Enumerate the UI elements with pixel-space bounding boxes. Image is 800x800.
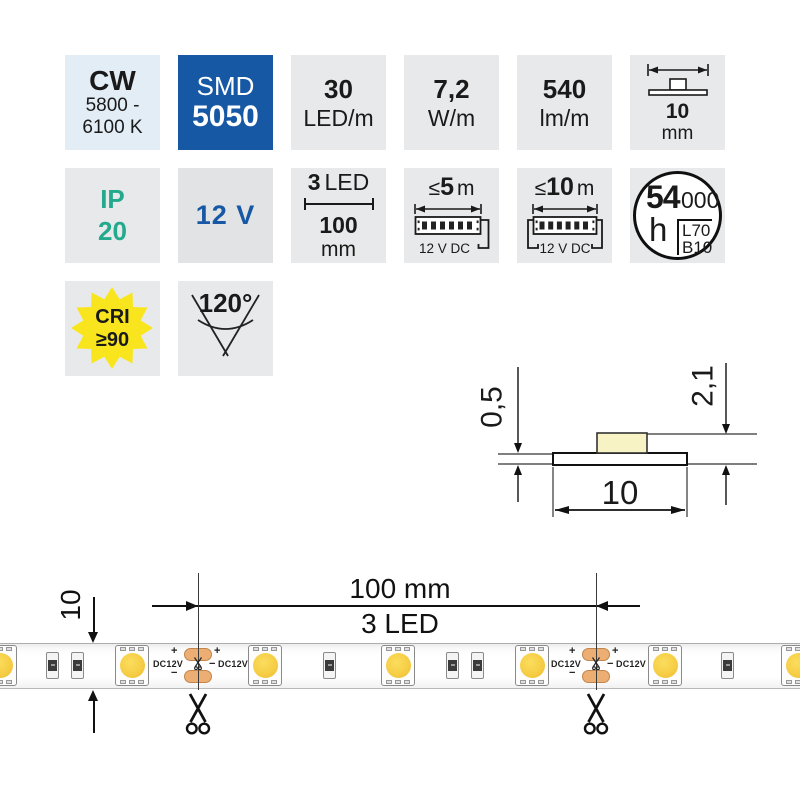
resistor-body bbox=[48, 660, 57, 671]
led-solder-pads bbox=[786, 647, 800, 651]
badge-cut-length: 3LED 100 mm bbox=[291, 168, 386, 263]
polarity-plus-label: + bbox=[214, 646, 220, 657]
led-density-unit: LED/m bbox=[303, 105, 373, 131]
led-solder-pads bbox=[386, 647, 410, 651]
strip-width-unit: mm bbox=[662, 124, 694, 143]
resistor-body bbox=[473, 660, 482, 671]
badge-cri: CRI ≥90 bbox=[65, 281, 160, 376]
badge-lifetime: 54 000 h L70 B10 bbox=[630, 168, 725, 263]
polarity-plus-label: + bbox=[612, 646, 618, 657]
badge-ip-rating: IP 20 bbox=[65, 168, 160, 263]
lifetime-value: 54 bbox=[646, 181, 680, 213]
ip-label: IP bbox=[100, 184, 125, 215]
scissors-icon bbox=[185, 693, 211, 737]
led-chip bbox=[120, 653, 145, 678]
badge-power: 7,2 W/m bbox=[404, 55, 499, 150]
led-module bbox=[515, 645, 549, 686]
led-chip bbox=[253, 653, 278, 678]
cri-value: ≥90 bbox=[96, 329, 129, 351]
led-solder-pads bbox=[120, 680, 144, 684]
cross-section-diagram: 0,5 2,1 10 bbox=[460, 355, 770, 525]
scissors-icon bbox=[193, 657, 203, 670]
cut-led-count: 3LED bbox=[308, 171, 370, 194]
cri-label: CRI bbox=[95, 306, 129, 328]
dimension-thickness-label: 0,5 bbox=[476, 386, 509, 428]
dimension-line-icon bbox=[303, 198, 375, 210]
badge-chip-type: SMD 5050 bbox=[178, 55, 273, 150]
led-chip bbox=[653, 653, 678, 678]
polarity-minus-label: − bbox=[569, 668, 575, 679]
led-solder-pads bbox=[386, 680, 410, 684]
dimension-arrowhead bbox=[596, 601, 608, 611]
cut-line bbox=[198, 573, 199, 690]
scissors-icon bbox=[591, 657, 601, 670]
polarity-minus-label: − bbox=[209, 659, 215, 670]
smd-resistor bbox=[71, 652, 84, 679]
badge-luminous-flux: 540 lm/m bbox=[517, 55, 612, 150]
led-chip bbox=[520, 653, 545, 678]
led-solder-pads bbox=[520, 680, 544, 684]
dimension-line bbox=[93, 701, 95, 733]
badge-max-run-single-feed: ≤5m 12 V DC bbox=[404, 168, 499, 263]
polarity-plus-label: + bbox=[569, 646, 575, 657]
smd-resistor bbox=[46, 652, 59, 679]
smd-resistor bbox=[323, 652, 336, 679]
led-module bbox=[248, 645, 282, 686]
max-run-single-title: ≤5m bbox=[429, 175, 475, 200]
dimension-arrowhead bbox=[186, 601, 198, 611]
led-density-value: 30 bbox=[324, 74, 353, 105]
led-solder-pads bbox=[653, 680, 677, 684]
supply-label: DC12V bbox=[616, 660, 646, 669]
led-solder-pads bbox=[786, 680, 800, 684]
lifetime-l-rating: L70 bbox=[682, 222, 710, 239]
supply-label: DC12V bbox=[548, 660, 581, 669]
single-feed-strip-icon: 12 V DC bbox=[414, 203, 490, 257]
led-module bbox=[115, 645, 149, 686]
resistor-body bbox=[723, 660, 732, 671]
dual-feed-strip-icon: 12 V DC bbox=[527, 203, 603, 257]
power-value: 7,2 bbox=[433, 74, 469, 105]
dimension-line-100mm bbox=[152, 605, 640, 607]
strip-width-dimension-label: 10 bbox=[54, 586, 88, 624]
led-solder-pads bbox=[253, 647, 277, 651]
led-solder-pads bbox=[120, 647, 144, 651]
color-temp-code: CW bbox=[89, 67, 136, 95]
cut-length-unit: mm bbox=[321, 239, 356, 260]
max-run-dual-title: ≤10m bbox=[535, 175, 595, 200]
dimension-width-label: 10 bbox=[602, 474, 639, 511]
cut-length-value: 100 bbox=[319, 213, 357, 238]
chip-type-label: SMD bbox=[197, 72, 255, 100]
module-led-count-label: 3 LED bbox=[300, 610, 500, 638]
polarity-plus-label: + bbox=[171, 646, 177, 657]
smd-resistor bbox=[721, 652, 734, 679]
strip-width-value: 10 bbox=[666, 101, 689, 123]
smd-resistor bbox=[446, 652, 459, 679]
led-solder-pads bbox=[653, 647, 677, 651]
badge-voltage: 12 V bbox=[178, 168, 273, 263]
resistor-body bbox=[325, 660, 334, 671]
cri-text: CRI ≥90 bbox=[65, 281, 160, 376]
led-solder-pads bbox=[253, 680, 277, 684]
lifetime-zeros: 000 bbox=[681, 189, 719, 212]
module-length-label: 100 mm bbox=[300, 575, 500, 603]
dimension-height-label: 2,1 bbox=[687, 365, 720, 407]
badge-strip-width: 10 mm bbox=[630, 55, 725, 150]
dimension-arrowhead bbox=[88, 690, 98, 701]
lifetime-b-rating: B10 bbox=[682, 239, 712, 256]
flux-value: 540 bbox=[543, 74, 586, 105]
color-temp-range-line2: 6100 K bbox=[82, 117, 142, 138]
cut-line bbox=[596, 573, 597, 690]
resistor-body bbox=[448, 660, 457, 671]
ip-value: 20 bbox=[98, 216, 127, 247]
dimension-line bbox=[93, 597, 95, 632]
voltage-value: 12 V bbox=[196, 200, 256, 231]
led-chip bbox=[786, 653, 800, 678]
led-module bbox=[781, 645, 800, 686]
supply-label: DC12V bbox=[218, 660, 248, 669]
led-chip-profile bbox=[597, 433, 647, 453]
led-solder-pads bbox=[520, 647, 544, 651]
led-chip bbox=[0, 653, 13, 678]
dimension-arrowhead bbox=[88, 632, 98, 643]
badge-color-temperature: CW 5800 - 6100 K bbox=[65, 55, 160, 150]
spec-badge-grid: CW 5800 - 6100 K SMD 5050 30 LED/m 7,2 W… bbox=[65, 55, 725, 376]
led-module bbox=[381, 645, 415, 686]
badge-beam-angle: 120° bbox=[178, 281, 273, 376]
scissors-icon bbox=[583, 693, 609, 737]
dual-feed-supply-label: 12 V DC bbox=[539, 241, 590, 256]
strip-width-icon bbox=[646, 62, 710, 98]
smd-resistor bbox=[471, 652, 484, 679]
supply-label: DC12V bbox=[150, 660, 183, 669]
chip-size-label: 5050 bbox=[192, 100, 259, 133]
badge-led-density: 30 LED/m bbox=[291, 55, 386, 150]
lifetime-circle: 54 000 h L70 B10 bbox=[633, 171, 722, 260]
polarity-minus-label: − bbox=[607, 659, 613, 670]
led-module bbox=[0, 645, 17, 686]
led-chip bbox=[386, 653, 411, 678]
led-strip-spec-sheet: CW 5800 - 6100 K SMD 5050 30 LED/m 7,2 W… bbox=[0, 0, 800, 800]
polarity-minus-label: − bbox=[171, 668, 177, 679]
led-solder-pads bbox=[0, 647, 12, 651]
led-solder-pads bbox=[0, 680, 12, 684]
badge-max-run-dual-feed: ≤10m 12 V DC bbox=[517, 168, 612, 263]
led-module bbox=[648, 645, 682, 686]
flux-unit: lm/m bbox=[540, 105, 590, 131]
power-unit: W/m bbox=[428, 105, 475, 131]
resistor-body bbox=[73, 660, 82, 671]
beam-angle-value: 120° bbox=[178, 290, 273, 316]
lifetime-unit: h bbox=[649, 213, 667, 246]
color-temp-range-line1: 5800 - bbox=[86, 95, 140, 116]
single-feed-supply-label: 12 V DC bbox=[419, 241, 470, 256]
strip-base-profile bbox=[553, 453, 687, 465]
